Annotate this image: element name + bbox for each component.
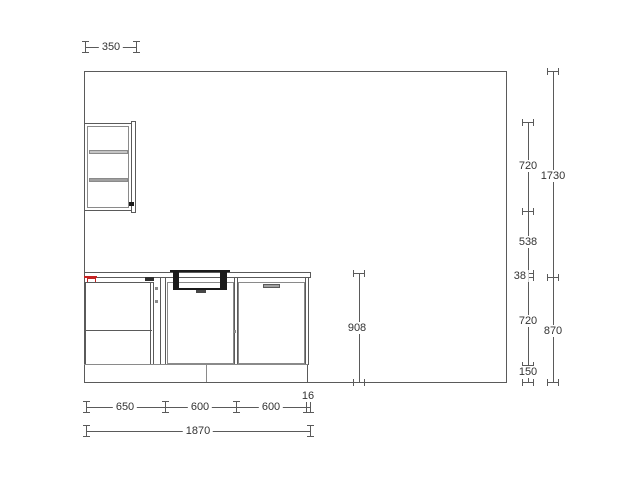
sink-drain [196, 290, 206, 293]
dim-label-wall-cabinet-width: 350 [99, 41, 123, 53]
dim-tick [547, 379, 559, 386]
worktop [84, 272, 311, 278]
dim-tick [83, 425, 90, 437]
left-cabinet-top-bracket [145, 277, 154, 281]
dim-tick [522, 379, 534, 386]
dim-label-segment-1: 650 [113, 401, 137, 413]
wall-cabinet-side-panel [131, 121, 136, 213]
dim-tick [162, 401, 169, 413]
left-cabinet-inner-edge [150, 282, 151, 365]
left-cabinet-shelf-line [86, 330, 152, 331]
filler-panel [160, 277, 166, 365]
left-cabinet-carcass [85, 282, 154, 365]
dim-label-worktop-overhang: 16 [299, 390, 317, 402]
hinge-mark [155, 287, 158, 290]
wall-cabinet-shelf [89, 150, 128, 154]
right-cabinet-handle [263, 284, 280, 288]
plinth-joint [206, 365, 207, 382]
dim-label-segment-2: 600 [188, 401, 212, 413]
dim-label-plinth-height: 150 [516, 366, 540, 378]
dim-tick [353, 379, 365, 386]
dim-label-segment-3: 600 [259, 401, 283, 413]
dim-tick [522, 208, 534, 215]
dim-tick [353, 270, 365, 277]
right-cabinet-door [238, 282, 305, 364]
sink-right-wall [220, 270, 227, 290]
sink-left-wall [173, 270, 179, 290]
hinge-mark [155, 300, 158, 303]
dim-tick [547, 68, 559, 75]
dim-tick [133, 41, 140, 53]
dim-tick [522, 119, 534, 126]
dim-label-worktop-to-floor: 908 [345, 322, 369, 334]
dim-tick [547, 274, 559, 281]
dim-label-total-width: 1870 [183, 425, 213, 437]
sink-cabinet-door [167, 282, 234, 364]
dim-tick [83, 401, 90, 413]
dim-label-wall-cabinet-height: 720 [516, 160, 540, 172]
dim-tick [307, 401, 314, 413]
wall-cabinet-door [87, 126, 129, 208]
dim-label-upper-total: 1730 [538, 170, 568, 182]
wall-cabinet-shelf [89, 178, 128, 182]
plinth-top-line [84, 364, 308, 365]
end-panel [305, 277, 309, 365]
plinth-end [307, 365, 308, 382]
dim-label-base-height: 720 [516, 315, 540, 327]
dim-label-worktop-thickness: 38 [511, 270, 529, 282]
dim-label-worktop-total: 870 [541, 325, 565, 337]
dim-label-gap: 538 [516, 236, 540, 248]
worktop-end-cap [310, 272, 311, 278]
kitchen-elevation-drawing: 350 720 538 38 720 150 1730 870 908 [0, 0, 640, 480]
dim-tick [233, 401, 240, 413]
dim-tick [307, 425, 314, 437]
hinge-mark [233, 330, 236, 333]
wall-cabinet-handle [129, 202, 134, 206]
dim-tick [82, 41, 89, 53]
